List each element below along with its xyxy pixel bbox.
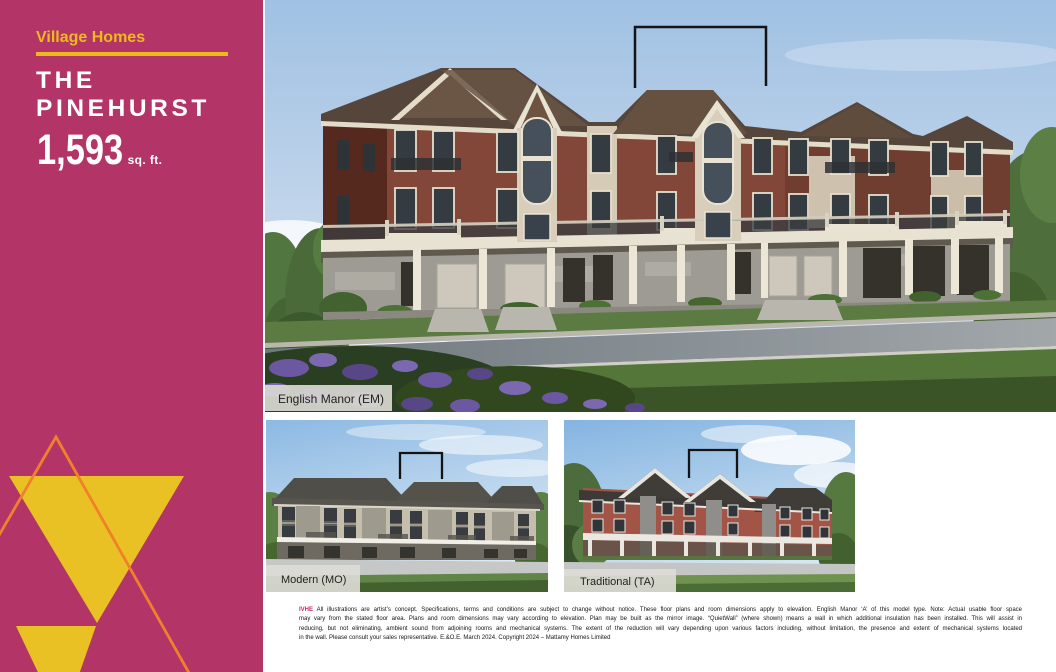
svg-text:English Manor (EM): English Manor (EM) [278,392,384,406]
svg-text:Traditional (TA): Traditional (TA) [580,576,655,588]
svg-text:Modern (MO): Modern (MO) [281,574,346,586]
